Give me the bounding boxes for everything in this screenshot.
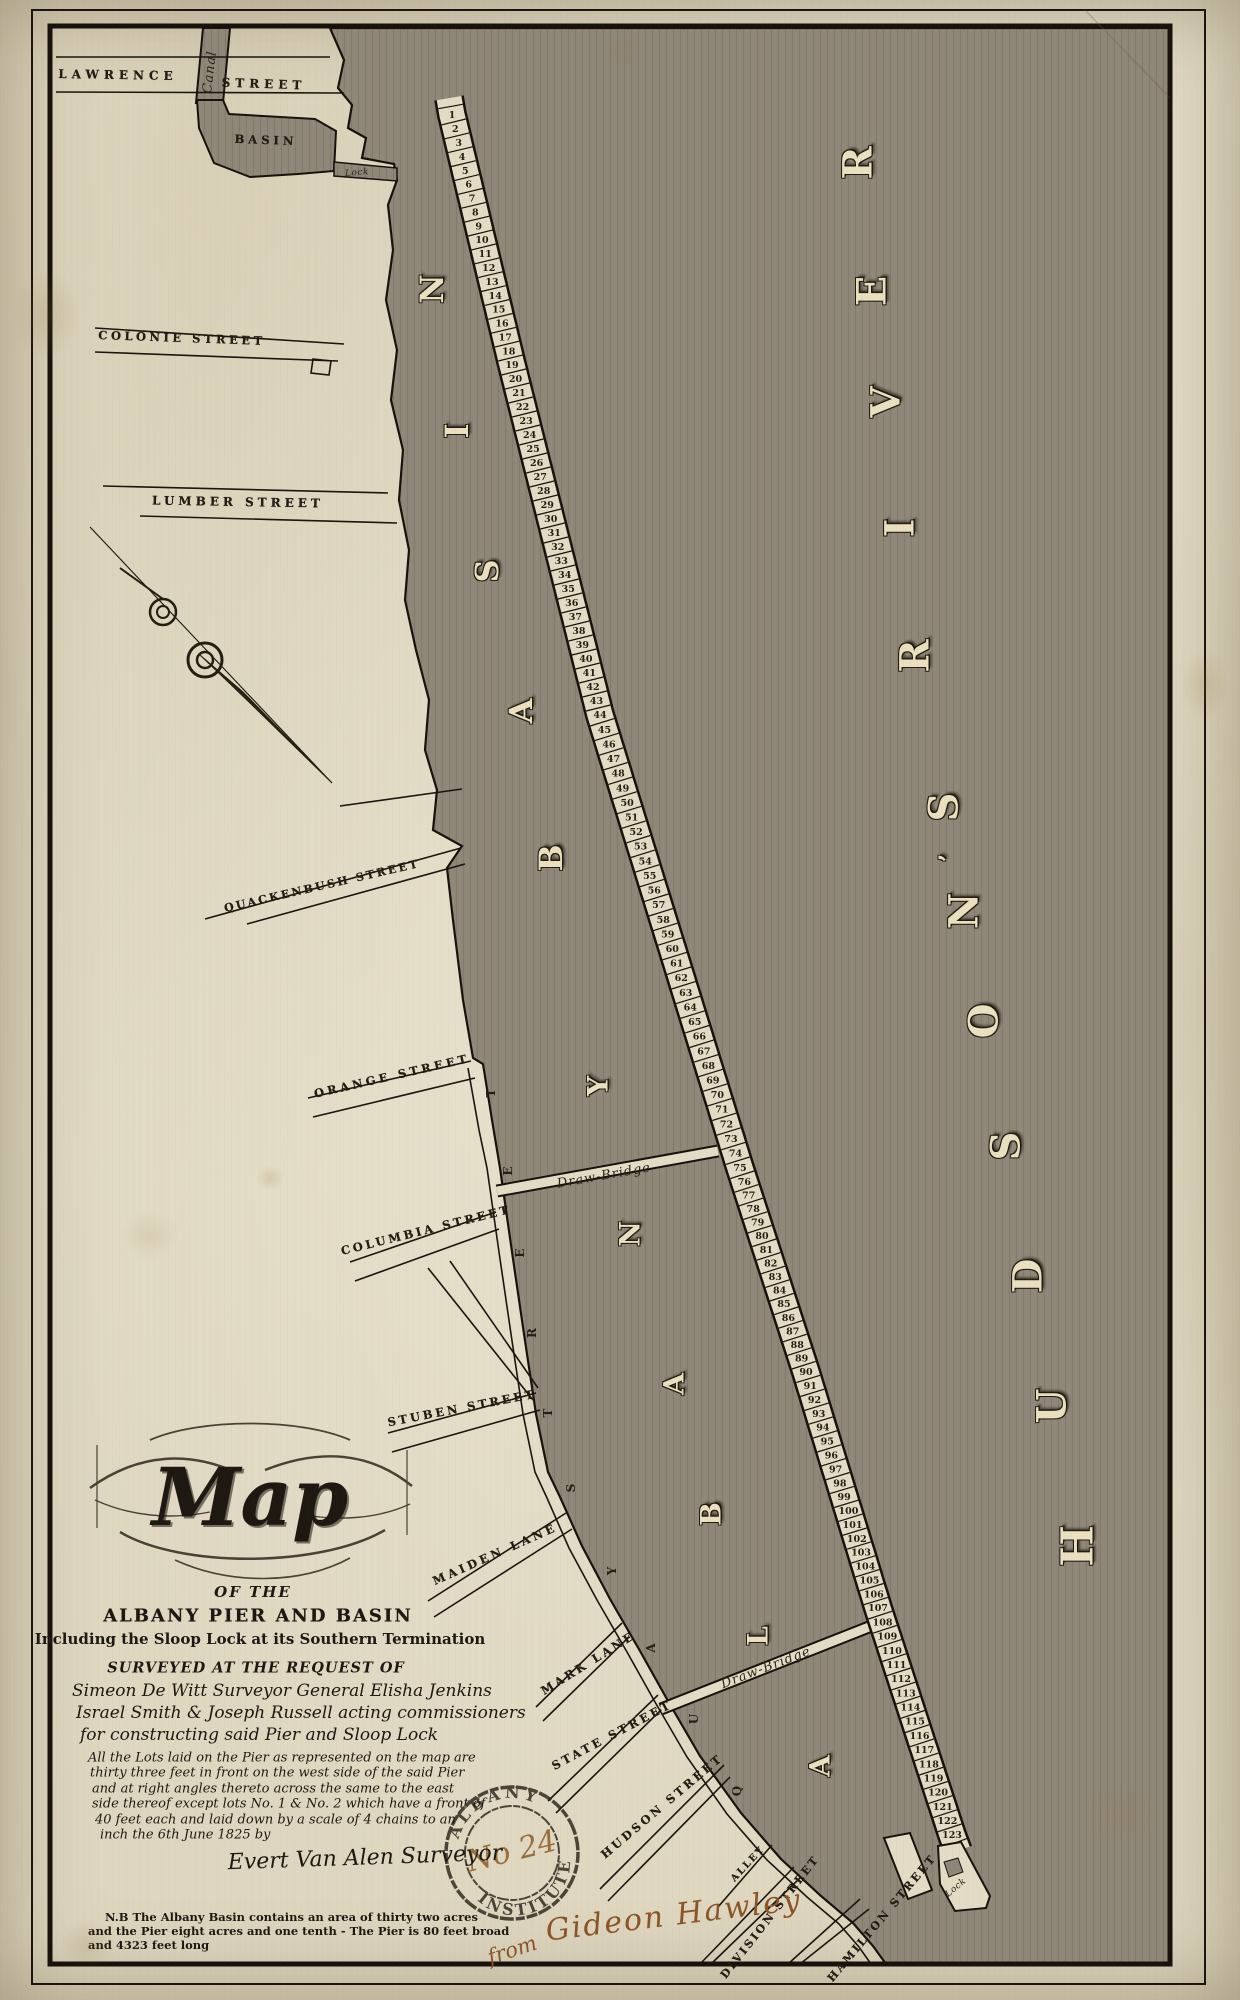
pier-lot-number-31: 31 — [548, 528, 561, 539]
pier-lot-number-67: 67 — [697, 1046, 710, 1057]
pier-lot-number-51: 51 — [625, 813, 638, 824]
pier-lot-number-36: 36 — [565, 598, 579, 609]
pier-lot-number-20: 20 — [509, 374, 523, 385]
pier-lot-number-24: 24 — [523, 430, 537, 441]
pier-lot-number-92: 92 — [808, 1395, 821, 1406]
cartouche-note-line-5: 40 feet each and laid down by a scale of… — [95, 1813, 456, 1828]
pier-lot-number-22: 22 — [516, 402, 529, 413]
quay-street-letter-E: E — [513, 1248, 527, 1257]
basin-letter-N: N — [413, 274, 451, 303]
pier-lot-number-72: 72 — [720, 1119, 733, 1130]
pier-lot-number-54: 54 — [639, 856, 653, 867]
pier-lot-number-38: 38 — [572, 626, 586, 637]
pier-lot-number-63: 63 — [679, 988, 692, 999]
pier-lot-number-60: 60 — [666, 944, 680, 955]
pier-lot-number-102: 102 — [847, 1534, 867, 1545]
cartouche-surveyed: SURVEYED AT THE REQUEST OF — [107, 1660, 405, 1677]
pier-lot-number-40: 40 — [579, 654, 593, 665]
cartouche-note-line-6: inch the 6th June 1825 by — [100, 1828, 270, 1843]
pier-lot-number-79: 79 — [751, 1218, 765, 1229]
pier-lot-number-30: 30 — [544, 514, 558, 525]
pier-lot-number-98: 98 — [833, 1478, 847, 1489]
pier-lot-number-106: 106 — [864, 1589, 884, 1600]
map-label-lawrence-street-1: LAWRENCE — [58, 67, 178, 83]
pier-lot-number-32: 32 — [551, 542, 564, 553]
pier-lot-number-59: 59 — [661, 929, 675, 940]
pier-lot-number-118: 118 — [919, 1759, 939, 1770]
river-letter-R: R — [835, 146, 882, 179]
pier-lot-number-74: 74 — [729, 1149, 743, 1160]
cartouche-script-line-2: Israel Smith & Joseph Russell acting com… — [76, 1703, 526, 1723]
nb-line-1: N.B The Albany Basin contains an area of… — [105, 1910, 478, 1924]
pier-lot-number-35: 35 — [562, 584, 575, 595]
pier-lot-number-110: 110 — [882, 1646, 902, 1657]
pier-lot-number-70: 70 — [711, 1090, 725, 1101]
pier-lot-number-62: 62 — [675, 973, 688, 984]
pier-lot-number-34: 34 — [558, 570, 572, 581]
quay-street-letter-T: T — [484, 1089, 498, 1098]
quay-street-letter-Q: Q — [730, 1786, 744, 1796]
pier-lot-number-64: 64 — [684, 1003, 698, 1014]
pier-lot-number-42: 42 — [586, 682, 599, 693]
pier-lot-number-101: 101 — [843, 1520, 863, 1531]
cartouche-note-line-2: thirty three feet in front on the west s… — [90, 1766, 464, 1781]
river-letter-O: O — [961, 1004, 1008, 1039]
pier-lot-number-111: 111 — [887, 1660, 907, 1671]
pier-lot-number-37: 37 — [569, 612, 582, 623]
pier-lot-number-65: 65 — [688, 1017, 701, 1028]
albany-letter-Y: Y — [582, 1076, 615, 1096]
pier-lot-number-114: 114 — [900, 1703, 920, 1714]
basin-letter-A: A — [502, 699, 540, 724]
pier-lot-number-75: 75 — [733, 1163, 746, 1174]
map-label-lawrence-street-2: STREET — [221, 76, 306, 93]
pier-lot-number-15: 15 — [492, 305, 505, 316]
pier-lot-number-43: 43 — [590, 696, 603, 707]
pier-lot-number-116: 116 — [910, 1731, 930, 1742]
map-label-basin-north: BASIN — [234, 132, 297, 148]
pier-lot-number-29: 29 — [541, 500, 555, 511]
pier-lot-number-27: 27 — [534, 472, 547, 483]
pier-lot-number-55: 55 — [643, 871, 656, 882]
albany-letter-L: L — [742, 1626, 775, 1646]
river-letter-R: R — [892, 639, 939, 672]
albany-letter-A: A — [658, 1373, 691, 1395]
cartouche-title-line: ALBANY PIER AND BASIN — [103, 1606, 413, 1627]
cartouche-script-line-1: Simeon De Witt Surveyor General Elisha J… — [72, 1681, 492, 1701]
pier-lot-number-6: 6 — [465, 180, 472, 191]
river-letter-V: V — [863, 386, 910, 417]
pier-lot-number-10: 10 — [475, 235, 489, 246]
river-letter-’: ’ — [934, 854, 963, 862]
pier-lot-number-84: 84 — [773, 1286, 787, 1297]
pier-lot-number-58: 58 — [657, 915, 671, 926]
pier-lot-number-26: 26 — [530, 458, 544, 469]
pier-lot-number-69: 69 — [706, 1076, 720, 1087]
pier-lot-number-23: 23 — [519, 416, 532, 427]
map-label-lumber-street: LUMBER STREET — [152, 494, 324, 511]
pier-lot-number-4: 4 — [459, 152, 466, 163]
pier-lot-number-28: 28 — [537, 486, 551, 497]
quay-street-letter-A: A — [644, 1643, 658, 1652]
pier-lot-number-47: 47 — [607, 754, 620, 765]
pier-lot-number-16: 16 — [495, 319, 509, 330]
pier-lot-number-19: 19 — [505, 360, 519, 371]
pier-lot-number-94: 94 — [816, 1423, 830, 1434]
river-letter-N: N — [941, 893, 988, 930]
pier-lot-number-8: 8 — [472, 207, 479, 218]
quay-street-letter-S: S — [564, 1484, 578, 1493]
cartouche-subtitle: Including the Sloop Lock at its Southern… — [35, 1630, 486, 1648]
pier-lot-number-80: 80 — [755, 1231, 769, 1242]
pier-lot-number-119: 119 — [924, 1774, 944, 1785]
cartouche-of-the: OF THE — [214, 1583, 292, 1601]
pier-lot-number-78: 78 — [747, 1204, 761, 1215]
pier-lot-number-83: 83 — [769, 1272, 782, 1283]
pier-lot-number-39: 39 — [576, 640, 590, 651]
pier-lot-number-103: 103 — [851, 1548, 871, 1559]
pier-lot-number-97: 97 — [829, 1464, 842, 1475]
basin-letter-S: S — [468, 559, 506, 582]
pier-lot-number-5: 5 — [462, 166, 469, 177]
pier-lot-number-33: 33 — [555, 556, 568, 567]
pier-lot-number-95: 95 — [821, 1437, 834, 1448]
pier-lot-number-17: 17 — [499, 332, 512, 343]
pier-lot-number-112: 112 — [891, 1674, 911, 1685]
pier-lot-number-61: 61 — [670, 959, 683, 970]
pier-lot-number-52: 52 — [629, 827, 642, 838]
pier-lot-number-12: 12 — [482, 263, 495, 274]
cartouche-note-line-1: All the Lots laid on the Pier as represe… — [88, 1751, 476, 1766]
pier-lot-number-123: 123 — [942, 1830, 962, 1841]
pier-lot-number-41: 41 — [583, 668, 596, 679]
cartouche-title-map: Map — [152, 1450, 348, 1544]
pier-lot-number-11: 11 — [479, 249, 492, 260]
nb-line-3: and 4323 feet long — [88, 1938, 209, 1952]
pier-lot-number-91: 91 — [804, 1381, 817, 1392]
pier-lot-number-105: 105 — [860, 1575, 880, 1586]
pier-lot-number-85: 85 — [777, 1299, 790, 1310]
pier-lot-number-46: 46 — [602, 739, 616, 750]
pier-lot-number-2: 2 — [452, 124, 459, 135]
map-canvas: 1234567891011121314151617181920212223242… — [0, 0, 1240, 2000]
pier-lot-number-68: 68 — [702, 1061, 716, 1072]
scroll-ornament — [120, 568, 332, 783]
pier-lot-number-3: 3 — [455, 138, 462, 149]
pier-lot-number-50: 50 — [620, 798, 634, 809]
quay-street-letter-E: E — [501, 1166, 515, 1175]
pier-lot-number-122: 122 — [937, 1816, 957, 1827]
pier-lot-number-88: 88 — [791, 1340, 805, 1351]
pier-lot-number-82: 82 — [764, 1258, 777, 1269]
pier-lot-number-53: 53 — [634, 842, 647, 853]
pier-lot-number-73: 73 — [724, 1134, 737, 1145]
pier-lot-number-104: 104 — [855, 1562, 875, 1573]
pier-lot-number-1: 1 — [449, 110, 456, 121]
river-letter-S: S — [921, 793, 968, 822]
pier-lot-number-86: 86 — [782, 1313, 796, 1324]
pier-lot-number-121: 121 — [933, 1802, 953, 1813]
pier-lot-number-66: 66 — [693, 1032, 707, 1043]
quay-street-letter-Y: Y — [605, 1567, 619, 1576]
basin-letter-I: I — [438, 424, 476, 439]
basin-letter-B: B — [532, 844, 570, 871]
pier-lot-number-44: 44 — [593, 710, 607, 721]
pier-lot-number-109: 109 — [877, 1632, 897, 1643]
pier-lot-number-25: 25 — [526, 444, 539, 455]
pier-lot-number-93: 93 — [812, 1409, 825, 1420]
cartouche-note-line-3: and at right angles thereto across the s… — [92, 1782, 454, 1797]
pier-lot-number-57: 57 — [652, 900, 665, 911]
albany-letter-A: A — [804, 1755, 837, 1777]
cartouche-script-line-3: for constructing said Pier and Sloop Loc… — [80, 1725, 438, 1745]
river-letter-H: H — [1053, 1525, 1104, 1567]
pier-lot-number-120: 120 — [928, 1788, 948, 1799]
pier-lot-number-71: 71 — [715, 1105, 728, 1116]
albany-letter-N: N — [614, 1221, 647, 1247]
pier-lot-number-21: 21 — [512, 388, 525, 399]
quay-street-letter-R: R — [525, 1328, 539, 1338]
pier-lot-number-108: 108 — [873, 1617, 893, 1628]
pier-lot-number-18: 18 — [502, 346, 516, 357]
pier-lot-number-14: 14 — [489, 291, 503, 302]
pier-lot-number-87: 87 — [786, 1326, 799, 1337]
pier-lot-number-81: 81 — [760, 1245, 773, 1256]
map-label-lock-north: Lock — [345, 167, 370, 179]
quay-street-letter-T: T — [541, 1409, 555, 1418]
albany-letter-B: B — [695, 1502, 728, 1526]
pier-lot-number-96: 96 — [825, 1451, 839, 1462]
pier-lot-number-76: 76 — [738, 1177, 752, 1188]
pier-lot-number-113: 113 — [896, 1688, 916, 1699]
pier-lot-number-48: 48 — [611, 769, 625, 780]
pier-lot-number-100: 100 — [838, 1506, 858, 1517]
river-letter-I: I — [877, 519, 924, 538]
pier-lot-number-56: 56 — [648, 886, 662, 897]
pier-lot-number-117: 117 — [914, 1745, 934, 1756]
cartouche-note-line-4: side thereof except lots No. 1 & No. 2 w… — [92, 1797, 485, 1812]
pier-lot-number-49: 49 — [616, 783, 630, 794]
pier-lot-number-107: 107 — [868, 1603, 888, 1614]
pier-lot-number-89: 89 — [795, 1354, 809, 1365]
pier-lot-number-99: 99 — [837, 1492, 851, 1503]
river-letter-D: D — [1005, 1259, 1052, 1294]
river-letter-E: E — [849, 276, 896, 307]
pier-lot-number-115: 115 — [905, 1717, 925, 1728]
pier-lot-number-45: 45 — [598, 725, 611, 736]
pier-lot-number-90: 90 — [799, 1367, 813, 1378]
pier-lot-number-7: 7 — [469, 194, 476, 205]
pier-lot-number-9: 9 — [475, 221, 482, 232]
nb-line-2: and the Pier eight acres and one tenth -… — [88, 1924, 509, 1938]
river-letter-U: U — [1029, 1389, 1076, 1424]
pier-lot-number-13: 13 — [485, 277, 498, 288]
river-letter-S: S — [983, 1132, 1030, 1161]
pier-lot-number-77: 77 — [742, 1190, 755, 1201]
quay-street-letter-U: U — [687, 1714, 701, 1724]
